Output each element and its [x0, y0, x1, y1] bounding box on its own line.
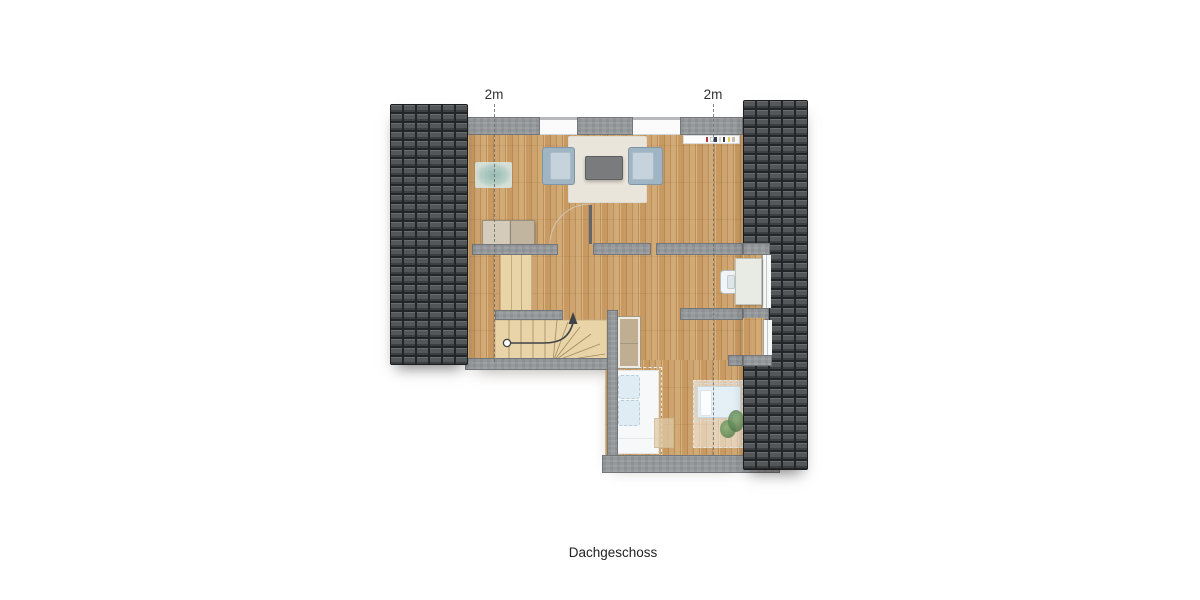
duvet-fold	[616, 438, 658, 439]
armchair-cushion	[632, 152, 654, 180]
plant-leaves	[728, 410, 744, 432]
desk	[735, 258, 762, 305]
study-nook-bottom-wall	[680, 308, 743, 320]
book-spine	[714, 137, 717, 142]
dormer2-wall-inner	[728, 355, 743, 366]
bookshelf	[683, 135, 740, 144]
sideboard	[482, 220, 535, 246]
bedroom-west-wall	[607, 310, 618, 473]
height-marker-left: 2m	[485, 87, 504, 102]
stair-top-wall	[495, 310, 563, 320]
interior-wall-mid-right-a	[593, 243, 651, 255]
dormer2-wall	[743, 355, 772, 366]
height-marker-right: 2m	[704, 87, 723, 102]
dormer1-window	[762, 255, 771, 308]
door-swing-arc	[548, 202, 594, 247]
exterior-wall-top-3	[680, 117, 743, 135]
book-spine	[732, 137, 735, 142]
dormer2-window	[763, 320, 772, 355]
stair-treads-area	[495, 320, 607, 362]
wardrobe	[618, 317, 640, 368]
book-spine	[728, 137, 730, 142]
book-spine	[723, 137, 725, 142]
interior-wall-mid-right-b	[656, 243, 743, 255]
coffee-table	[585, 156, 623, 180]
armchair-left	[542, 147, 575, 185]
exterior-wall-top-2	[577, 117, 633, 135]
armchair-right	[628, 147, 663, 185]
interior-wall-mid-left	[472, 244, 558, 255]
potted-plant	[720, 410, 744, 446]
book-spine	[706, 137, 708, 142]
exterior-wall-bottom-left	[465, 358, 612, 370]
pillow	[618, 375, 640, 399]
bedside-mat	[654, 418, 674, 448]
window-top-right	[633, 117, 680, 135]
bed-large	[615, 370, 659, 454]
exterior-wall-top-1	[465, 117, 540, 135]
dormer1-top-wall	[743, 243, 770, 255]
door-leaf	[589, 205, 592, 244]
armchair-cushion	[550, 152, 571, 180]
floorplan-canvas: 2m 2m Dachgeschoss	[0, 0, 1200, 600]
floor-caption: Dachgeschoss	[569, 545, 658, 560]
pillow	[700, 390, 712, 416]
book-spine	[719, 137, 721, 142]
height-line-right	[713, 104, 714, 455]
window-top-left	[540, 117, 577, 135]
dormer2-floor	[743, 318, 765, 357]
height-line-left	[494, 104, 495, 362]
pillow	[618, 400, 640, 426]
roof-left	[390, 104, 468, 365]
